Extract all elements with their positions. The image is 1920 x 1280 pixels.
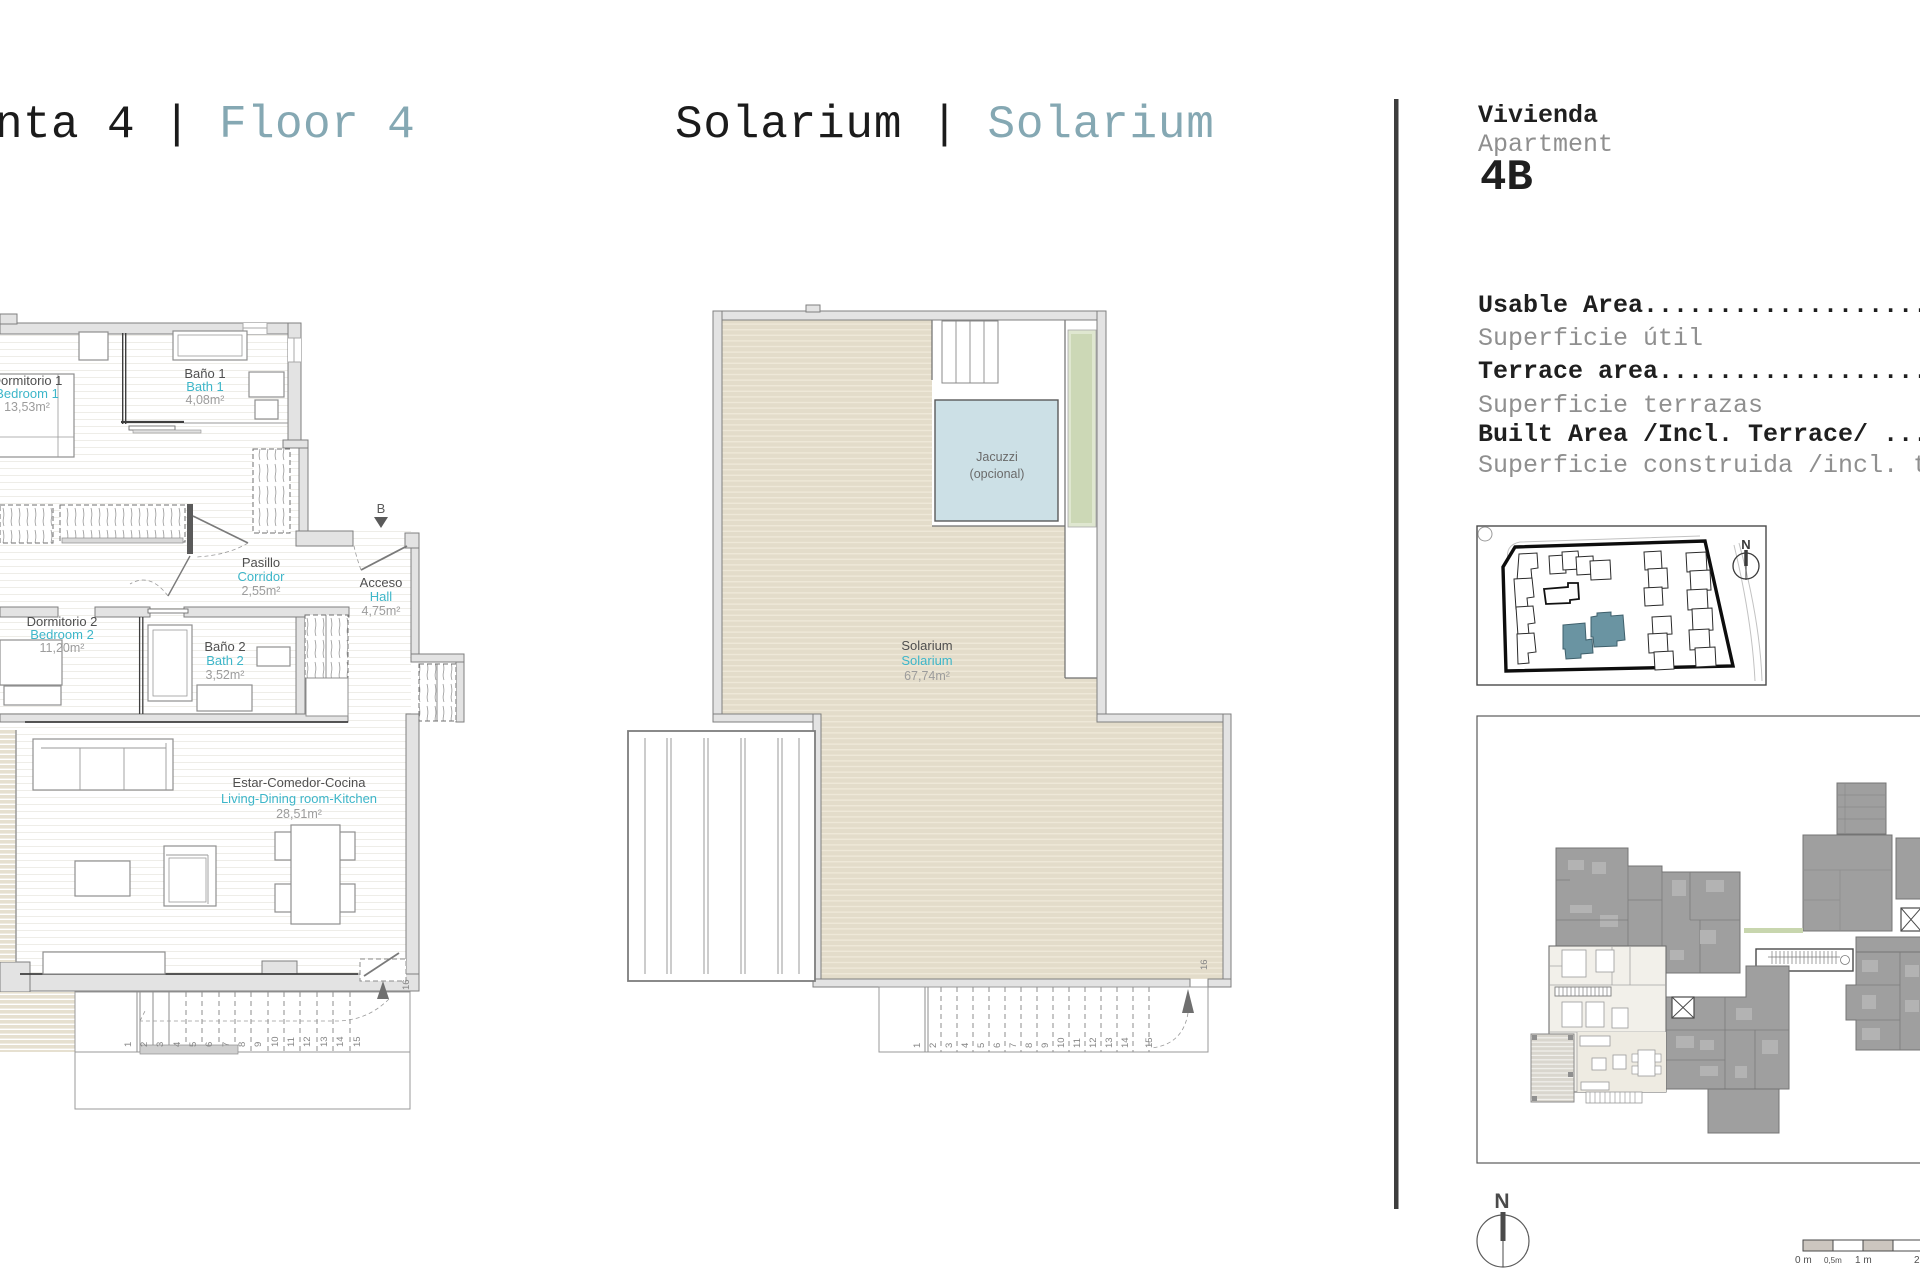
svg-text:Superficie terrazas: Superficie terrazas [1478,391,1763,420]
svg-text:3,52m²: 3,52m² [206,668,245,682]
svg-text:2: 2 [928,1043,939,1048]
svg-text:(opcional): (opcional) [970,467,1025,481]
svg-text:Solarium: Solarium [901,653,952,668]
svg-text:4,75m²: 4,75m² [362,604,401,618]
svg-text:Superficie útil: Superficie útil [1478,324,1703,353]
svg-text:Acceso: Acceso [360,575,403,590]
svg-text:1: 1 [912,1043,923,1048]
svg-text:10: 10 [1056,1037,1067,1048]
svg-text:Jacuzzi: Jacuzzi [976,450,1018,464]
svg-text:Living-Dining room-Kitchen: Living-Dining room-Kitchen [221,791,377,806]
svg-text:2: 2 [139,1042,150,1047]
svg-text:1 m: 1 m [1855,1255,1872,1266]
svg-text:10: 10 [270,1036,281,1047]
svg-text:Corridor: Corridor [238,569,286,584]
svg-text:Bath 2: Bath 2 [206,653,244,668]
svg-text:4: 4 [172,1042,183,1047]
svg-text:4: 4 [960,1043,971,1048]
svg-text:Superficie construida /incl. t: Superficie construida /incl. t [1478,451,1920,480]
svg-text:Vivienda: Vivienda [1478,101,1598,130]
svg-text:0,5m: 0,5m [1824,1256,1842,1265]
svg-text:13: 13 [1104,1037,1115,1048]
svg-text:11: 11 [1072,1038,1083,1048]
svg-text:5: 5 [188,1042,199,1047]
svg-text:3: 3 [155,1042,166,1047]
svg-text:B: B [377,501,386,516]
svg-text:12: 12 [302,1036,313,1047]
svg-text:15: 15 [352,1036,363,1047]
svg-text:16: 16 [1199,959,1210,970]
svg-text:15: 15 [1144,1037,1155,1048]
svg-text:12: 12 [1088,1037,1099,1048]
svg-text:Bedroom 2: Bedroom 2 [30,627,94,642]
svg-text:Built Area /Incl. Terrace/ ...: Built Area /Incl. Terrace/ .... [1478,420,1920,449]
svg-text:7: 7 [1008,1043,1019,1048]
svg-text:Estar-Comedor-Cocina: Estar-Comedor-Cocina [233,775,367,790]
svg-text:Hall: Hall [370,589,393,604]
svg-text:Baño 2: Baño 2 [204,639,245,654]
svg-text:14: 14 [1120,1037,1131,1048]
svg-text:7: 7 [221,1042,232,1047]
svg-text:Usable Area...................: Usable Area..................... [1478,291,1920,320]
svg-text:67,74m²: 67,74m² [904,669,950,683]
svg-text:6: 6 [992,1043,1003,1048]
svg-text:Terrace area..................: Terrace area.................... [1478,357,1920,386]
svg-text:N: N [1741,537,1750,552]
svg-text:13: 13 [319,1036,330,1047]
svg-text:28,51m²: 28,51m² [276,807,322,821]
svg-text:Bath 1: Bath 1 [186,379,224,394]
svg-text:9: 9 [1040,1043,1051,1048]
svg-text:Bedroom 1: Bedroom 1 [0,386,59,401]
svg-text:2: 2 [1914,1255,1920,1266]
svg-text:nta 4 | Floor 4: nta 4 | Floor 4 [0,99,415,151]
svg-text:0 m: 0 m [1795,1255,1812,1266]
svg-text:4B: 4B [1480,153,1533,203]
svg-text:5: 5 [976,1043,987,1048]
svg-text:3: 3 [944,1043,955,1048]
svg-text:Solarium: Solarium [901,638,952,653]
svg-text:2,55m²: 2,55m² [242,584,281,598]
svg-text:11,20m²: 11,20m² [40,641,85,655]
svg-text:13,53m²: 13,53m² [4,400,50,414]
svg-text:8: 8 [1024,1043,1035,1048]
svg-text:Pasillo: Pasillo [242,555,280,570]
svg-text:1: 1 [123,1042,134,1047]
svg-text:Solarium | Solarium: Solarium | Solarium [675,99,1215,151]
svg-text:6: 6 [204,1042,215,1047]
svg-text:14: 14 [335,1036,346,1047]
svg-text:N: N [1494,1190,1509,1213]
svg-text:4,08m²: 4,08m² [186,393,225,407]
svg-text:8: 8 [237,1042,248,1047]
svg-text:11: 11 [286,1037,297,1047]
svg-text:9: 9 [253,1042,264,1047]
svg-text:16: 16 [401,979,412,990]
